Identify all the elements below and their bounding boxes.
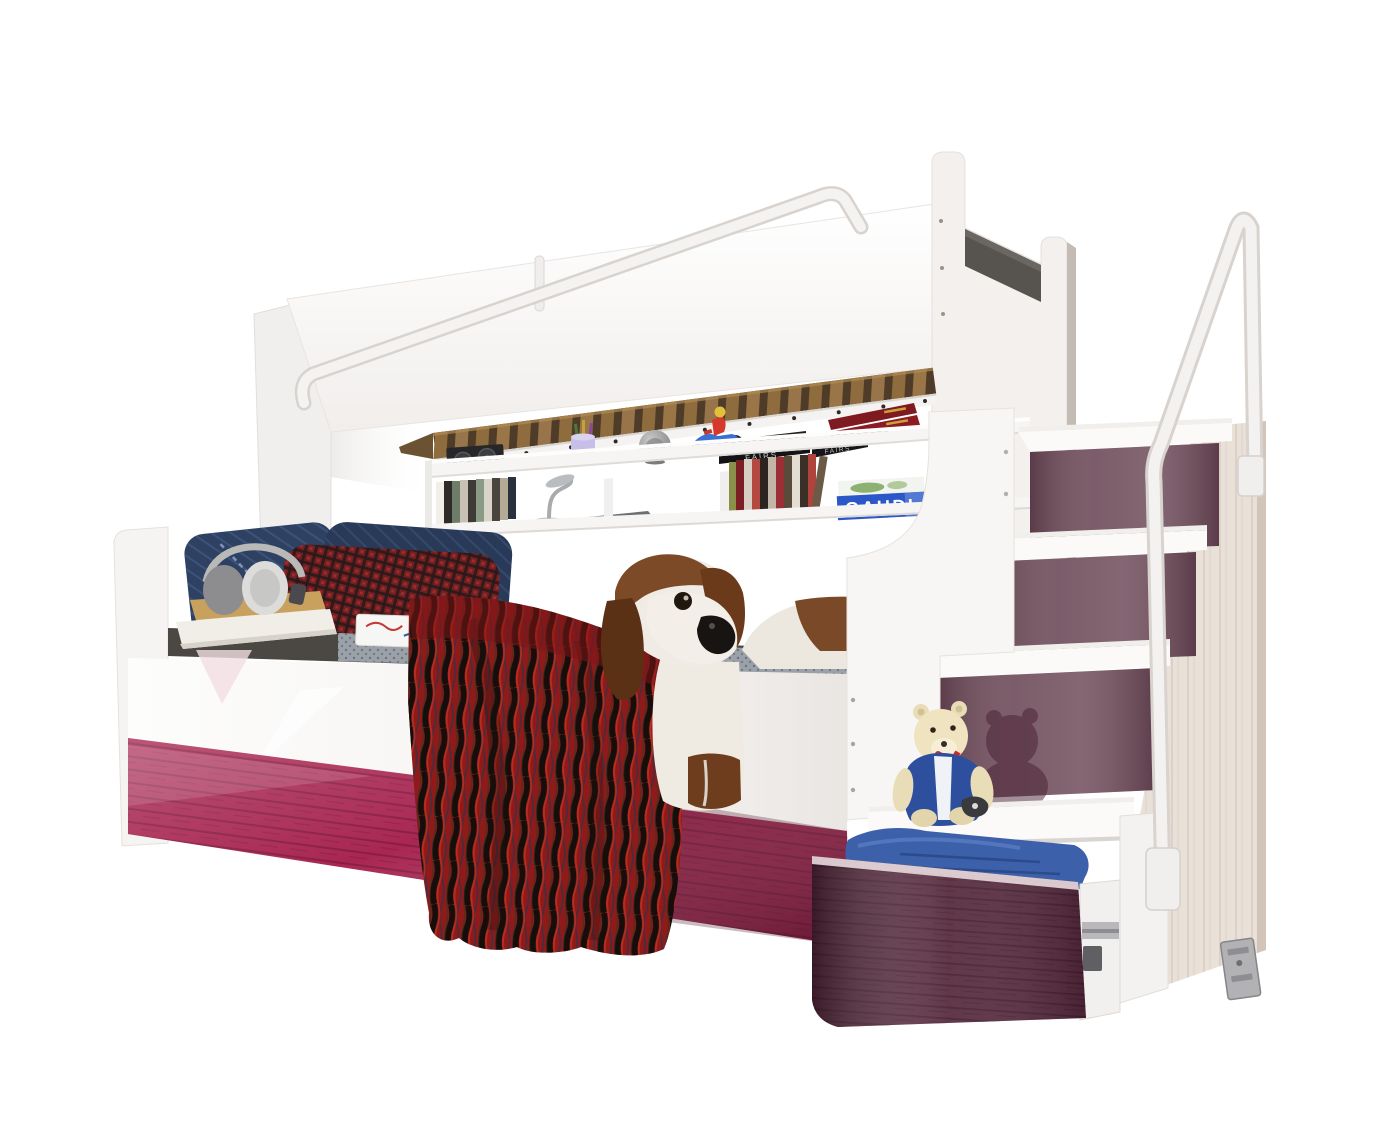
screw-dot	[851, 788, 855, 792]
stair-right-edge	[1257, 421, 1266, 953]
teddy-ear-inner	[956, 706, 963, 713]
teddy-paw-dot	[972, 803, 978, 809]
metal-bracket	[1220, 938, 1261, 1000]
teddy-nose	[941, 741, 947, 747]
dog-nose-highlight	[709, 623, 715, 629]
screw-dot	[851, 698, 855, 702]
product-photo-bunk-bed: FAIRS FAIRS	[0, 0, 1391, 1125]
drawer-box	[1080, 880, 1120, 1020]
dog-eye-glint	[684, 596, 689, 601]
teddy-eye	[950, 725, 956, 731]
drawer-front	[812, 856, 1086, 1027]
teddy-eye	[930, 727, 936, 733]
handrail-bottom-bracket	[1146, 848, 1180, 910]
teddy-ear-inner	[918, 709, 925, 716]
screw-dot	[939, 219, 943, 223]
shelf-books-left	[436, 477, 516, 526]
dog-eye	[674, 592, 692, 610]
teddy-foot	[911, 809, 937, 827]
screw-dot	[1004, 492, 1008, 496]
shelf-left-cap	[425, 460, 432, 539]
screw-dot	[940, 266, 944, 270]
bunk-bed-illustration: FAIRS FAIRS	[0, 0, 1391, 1125]
screw-dot	[941, 312, 945, 316]
handrail-top-bracket	[1238, 456, 1264, 496]
drawer-slide-lock	[1083, 946, 1102, 971]
drawer-slide-groove	[1082, 929, 1119, 933]
dog-paw-patch	[688, 753, 741, 809]
screw-dot	[1004, 450, 1008, 454]
screw-dot	[851, 742, 855, 746]
